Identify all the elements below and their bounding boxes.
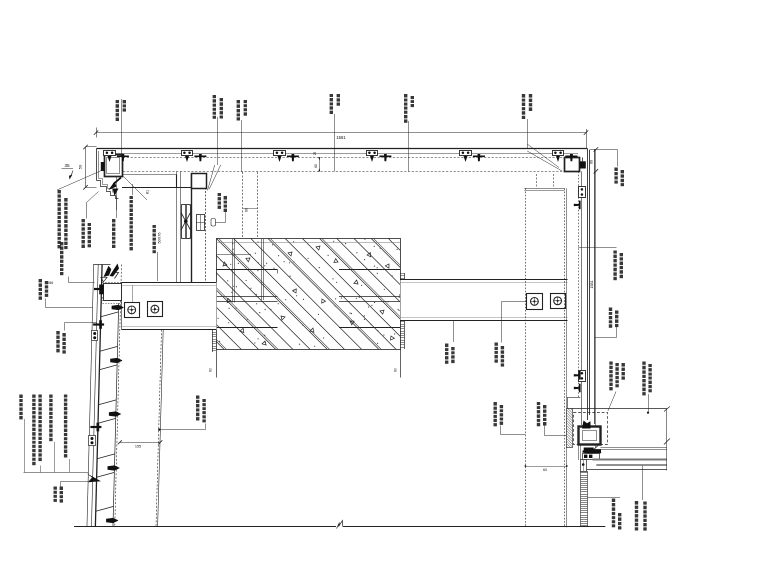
svg-text:60: 60 [393,368,397,372]
svg-text:M6: M6 [49,281,54,285]
svg-text:35: 35 [64,163,70,168]
svg-text:60: 60 [590,160,594,164]
svg-text:60: 60 [314,164,318,168]
svg-text:60: 60 [543,468,547,472]
svg-text:1581: 1581 [336,135,346,140]
svg-text:81: 81 [146,190,150,194]
svg-text:50X76: 50X76 [158,233,162,244]
svg-text:60: 60 [245,208,249,212]
svg-text:155: 155 [135,444,141,448]
svg-text:25: 25 [313,152,317,156]
svg-text:50: 50 [78,164,83,169]
svg-text:60: 60 [208,368,212,372]
svg-text:1581: 1581 [590,281,594,289]
